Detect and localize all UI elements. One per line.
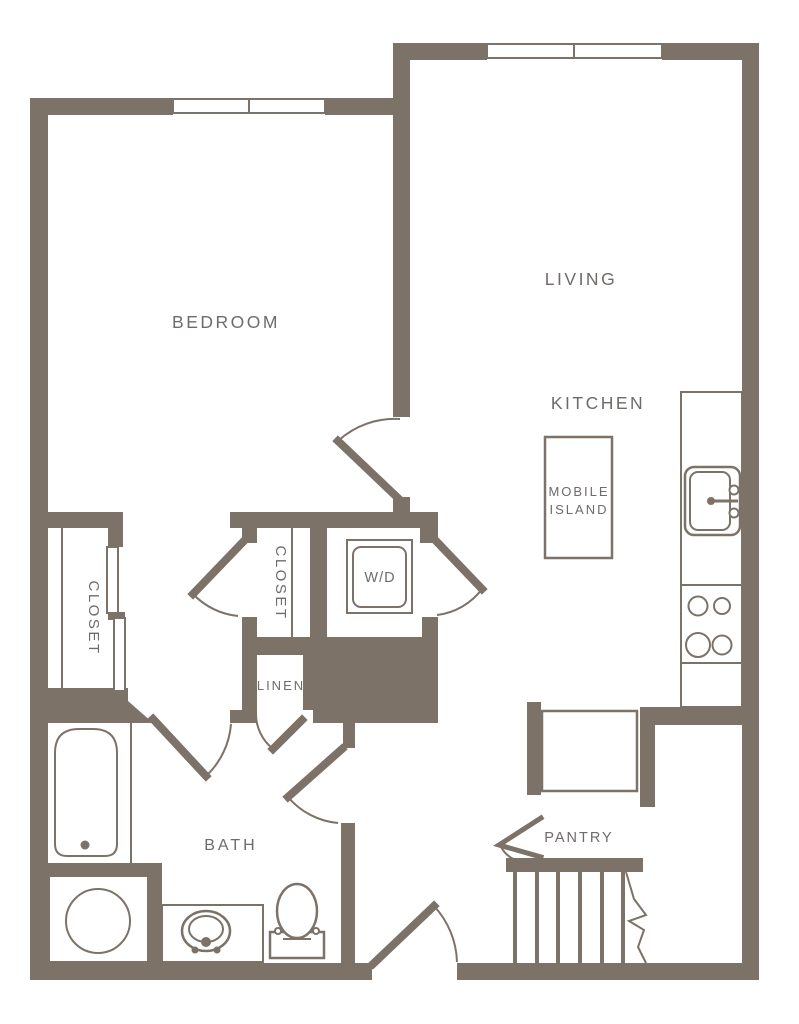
wall-entry-top xyxy=(640,707,759,725)
room-label-closet-hall: CLOSET xyxy=(272,545,289,620)
toilet-hinge-left xyxy=(275,928,281,934)
hall-closet-door-leaf xyxy=(193,543,242,594)
wall-bath-entry xyxy=(341,823,355,963)
hall-entry-door-leaf xyxy=(288,749,342,797)
shower-pan xyxy=(66,889,130,953)
vanity-handle-left xyxy=(192,947,199,954)
kitchen-faucet-handle-bottom xyxy=(730,509,739,518)
wd-door-leaf xyxy=(438,543,482,589)
wall-bottom-left xyxy=(30,963,372,980)
wall-closet-wd-divider xyxy=(310,528,327,637)
washer-dryer-label: W/D xyxy=(364,570,395,586)
wall-left xyxy=(30,98,48,980)
wall-pantry-left xyxy=(527,702,541,795)
floor-plan-svg: BEDROOM LIVING KITCHEN MOBILE ISLAND CLO… xyxy=(0,0,799,1024)
stairs-break-line xyxy=(626,872,646,963)
wall-right xyxy=(742,43,759,963)
wall-bedroom-bottom xyxy=(30,512,123,528)
floor-plan: BEDROOM LIVING KITCHEN MOBILE ISLAND CLO… xyxy=(0,0,799,1024)
entry-door-arc xyxy=(434,906,457,962)
mobile-island-label-line1: MOBILE xyxy=(548,484,609,499)
vanity-faucet xyxy=(201,937,211,947)
wall-linen-top xyxy=(242,637,313,655)
wall-band-below-closet xyxy=(30,688,153,723)
stove xyxy=(681,585,742,663)
room-label-bedroom: BEDROOM xyxy=(172,312,280,332)
kitchen-faucet-handle-top xyxy=(730,486,739,495)
linen-door-leaf xyxy=(273,720,302,749)
bathtub-drain xyxy=(81,841,90,850)
wall-linen-left-nub xyxy=(230,710,257,723)
bedroom-door-arc xyxy=(338,419,400,441)
hall-closet-door-arc xyxy=(193,594,238,616)
wall-closet-left-nub-top xyxy=(108,528,123,547)
bedroom-door-leaf xyxy=(338,441,400,500)
room-label-kitchen: KITCHEN xyxy=(551,393,645,413)
wall-bedroom-top-right xyxy=(325,98,393,115)
wall-hall-door-nub xyxy=(343,723,355,748)
room-label-linen: LINEN xyxy=(257,678,305,693)
wall-shower-right xyxy=(148,863,162,963)
room-label-living: LIVING xyxy=(545,269,617,289)
room-label-closet-left: CLOSET xyxy=(85,580,102,655)
wd-door-arc xyxy=(437,589,482,615)
closet-left-slider-2 xyxy=(114,618,125,691)
entry-counter-box xyxy=(542,711,637,791)
linen-door-arc xyxy=(256,713,273,749)
entry-door-leaf xyxy=(373,906,434,964)
hall-entry-door-arc xyxy=(288,797,338,823)
room-label-bath: BATH xyxy=(204,837,257,854)
room-label-pantry: PANTRY xyxy=(544,830,613,846)
wall-wd-nub-bottom xyxy=(422,617,438,637)
wall-closet-row-top xyxy=(230,512,438,528)
wall-linen-left xyxy=(242,655,257,710)
wall-closet-hall-nub-bottom xyxy=(242,617,257,637)
walls xyxy=(30,43,759,980)
toilet-hinge-right xyxy=(313,928,319,934)
wall-stairs-top xyxy=(506,858,643,872)
vanity-handle-right xyxy=(214,947,221,954)
wall-bedroom-top-left xyxy=(30,98,173,115)
wall-bottom-right xyxy=(457,963,759,980)
wall-bedroom-living-divider xyxy=(393,43,410,417)
toilet-bowl xyxy=(277,884,317,938)
mobile-island-label-line2: ISLAND xyxy=(550,502,609,517)
bathtub xyxy=(55,729,117,856)
wall-center-block xyxy=(313,637,438,723)
closet-left-slider-1 xyxy=(107,547,118,613)
bath-door-leaf xyxy=(153,719,206,776)
pantry-door-leaf xyxy=(499,818,541,857)
stairs-treads xyxy=(515,872,623,963)
wall-entry-left xyxy=(640,707,655,807)
bath-door-arc xyxy=(206,724,231,776)
